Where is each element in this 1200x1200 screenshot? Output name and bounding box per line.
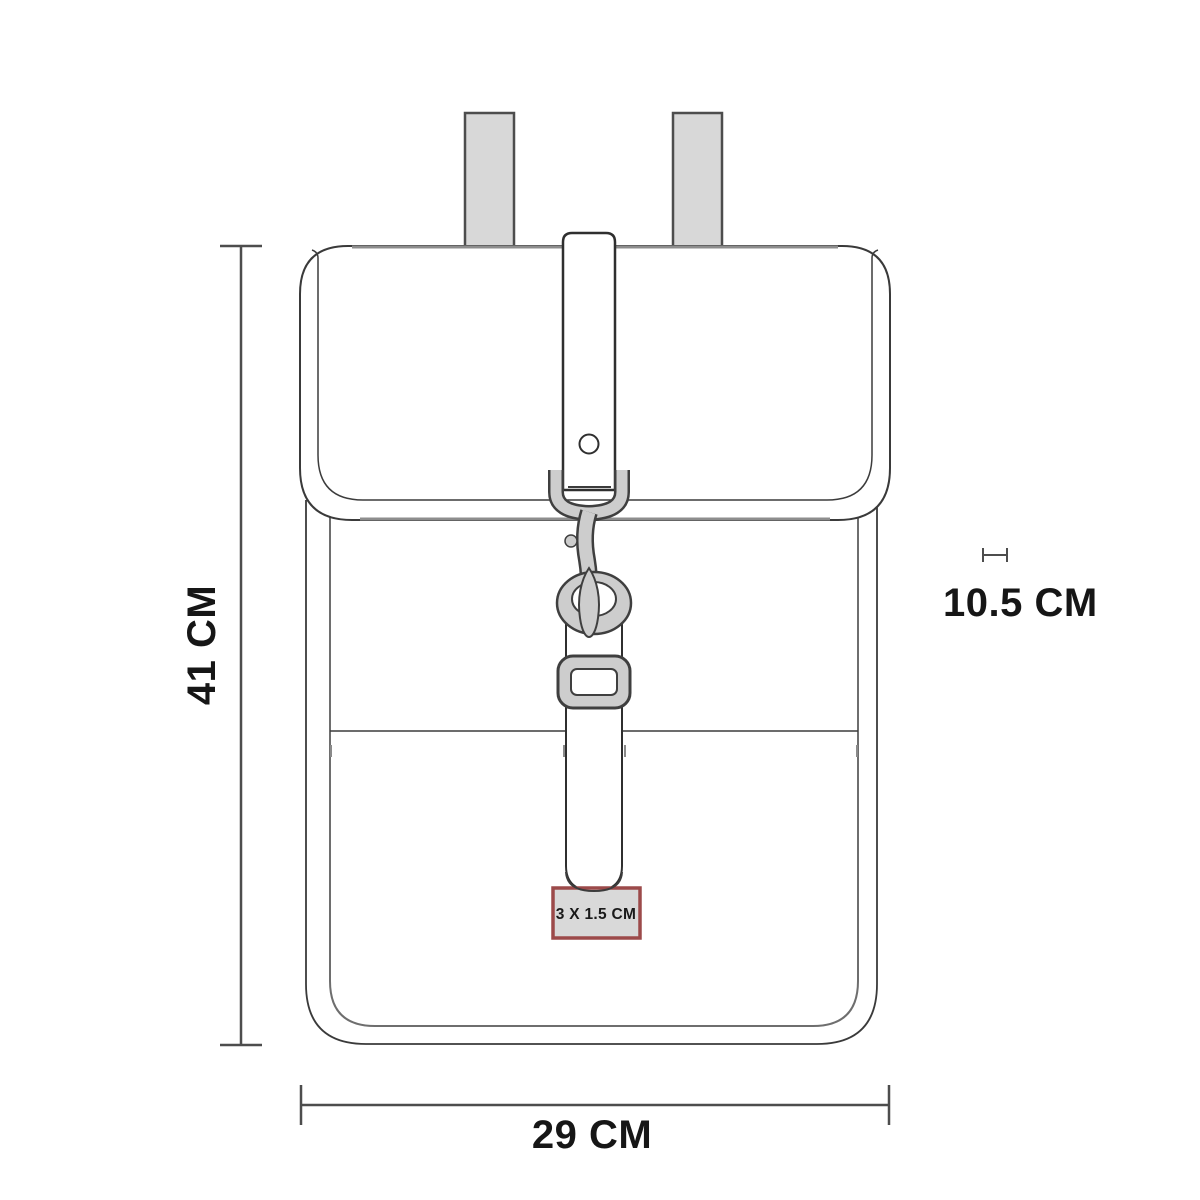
diagram-canvas: 3 X 1.5 CM 41 CM 29 CM 10.5 CM bbox=[0, 0, 1200, 1200]
snap-button bbox=[580, 435, 599, 454]
closure-strap-upper bbox=[563, 233, 615, 490]
width-dimension-label: 29 CM bbox=[532, 1113, 652, 1157]
right-shoulder-strap bbox=[673, 113, 722, 252]
backpack-measurement-diagram: 3 X 1.5 CM 41 CM 29 CM 10.5 CM bbox=[0, 0, 1200, 1200]
left-shoulder-strap bbox=[465, 113, 514, 252]
height-dimension: 41 CM bbox=[180, 246, 262, 1045]
depth-dimension-label: 10.5 CM bbox=[943, 581, 1098, 625]
hook-gate-nub bbox=[565, 535, 577, 547]
height-dimension-label: 41 CM bbox=[180, 585, 224, 705]
closure-strap-lower bbox=[566, 597, 622, 891]
strap-slider bbox=[558, 656, 630, 708]
branding-area-label: 3 X 1.5 CM bbox=[556, 906, 637, 923]
depth-dimension: 10.5 CM bbox=[943, 548, 1098, 625]
width-dimension: 29 CM bbox=[301, 1085, 889, 1157]
slider-hole bbox=[571, 669, 617, 695]
